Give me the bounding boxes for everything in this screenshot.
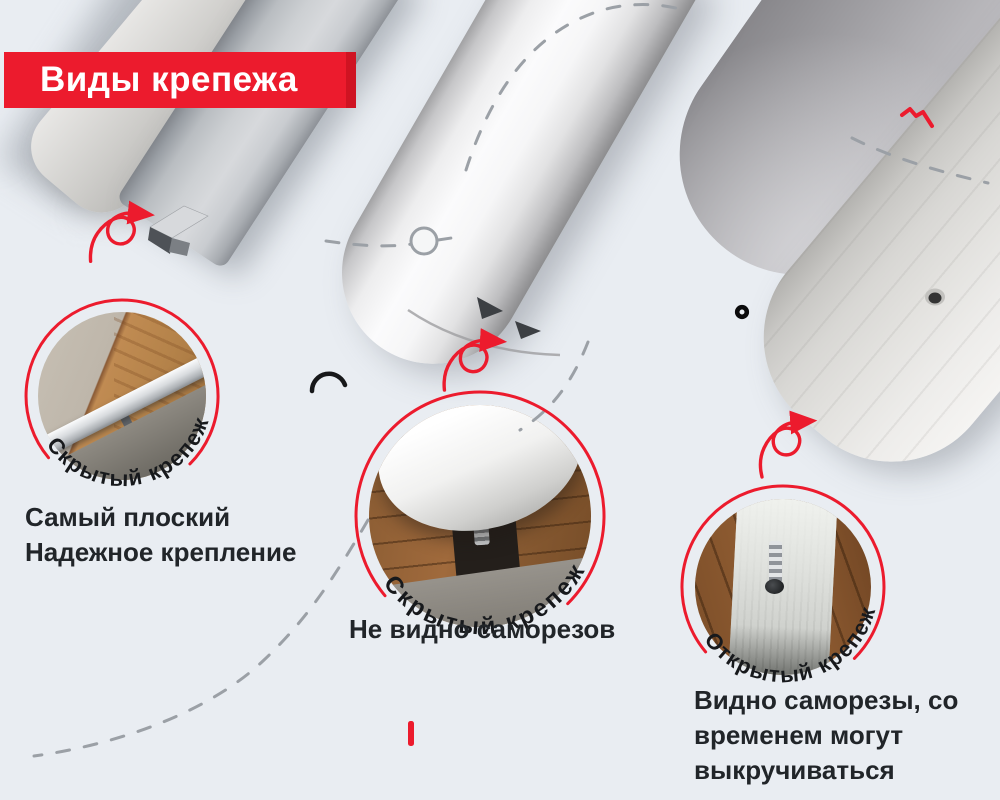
- dome-profile-strip: [309, 0, 702, 397]
- description-1: Самый плоский Надежное крепление: [25, 500, 296, 570]
- callout-photo-1: [38, 312, 206, 480]
- swirl-arrow-icon-3: [760, 422, 799, 477]
- infographic-canvas: Скрытый крепеж Скрытый крепеж Открытый к…: [0, 0, 1000, 800]
- photo-open-profile: [695, 499, 871, 675]
- photo-screw-head: [765, 579, 784, 594]
- page-title: Виды крепежа: [4, 52, 346, 108]
- arc-mark: [312, 374, 345, 391]
- description-line: Не видно саморезов: [349, 612, 615, 647]
- description-2: Не видно саморезов: [349, 612, 615, 647]
- description-line: Видно саморезы, со: [694, 683, 958, 718]
- red-tick-mark: [408, 721, 414, 746]
- swirl-arrow-icon-1: [89, 207, 137, 268]
- title-banner: Виды крепежа: [4, 52, 346, 108]
- description-line: Надежное крепление: [25, 535, 296, 570]
- callout-photo-3: [695, 499, 871, 675]
- photo-t-profile-crossection: [38, 312, 206, 480]
- photo-dome-profile-crossection: [369, 405, 591, 627]
- description-line: выкручиваться: [694, 753, 958, 788]
- screw-hole-ring: [737, 307, 747, 317]
- callout-photo-2: [369, 405, 591, 627]
- description-line: временем могут: [694, 718, 958, 753]
- description-line: Самый плоский: [25, 500, 296, 535]
- description-3: Видно саморезы, со временем могут выкруч…: [694, 683, 958, 788]
